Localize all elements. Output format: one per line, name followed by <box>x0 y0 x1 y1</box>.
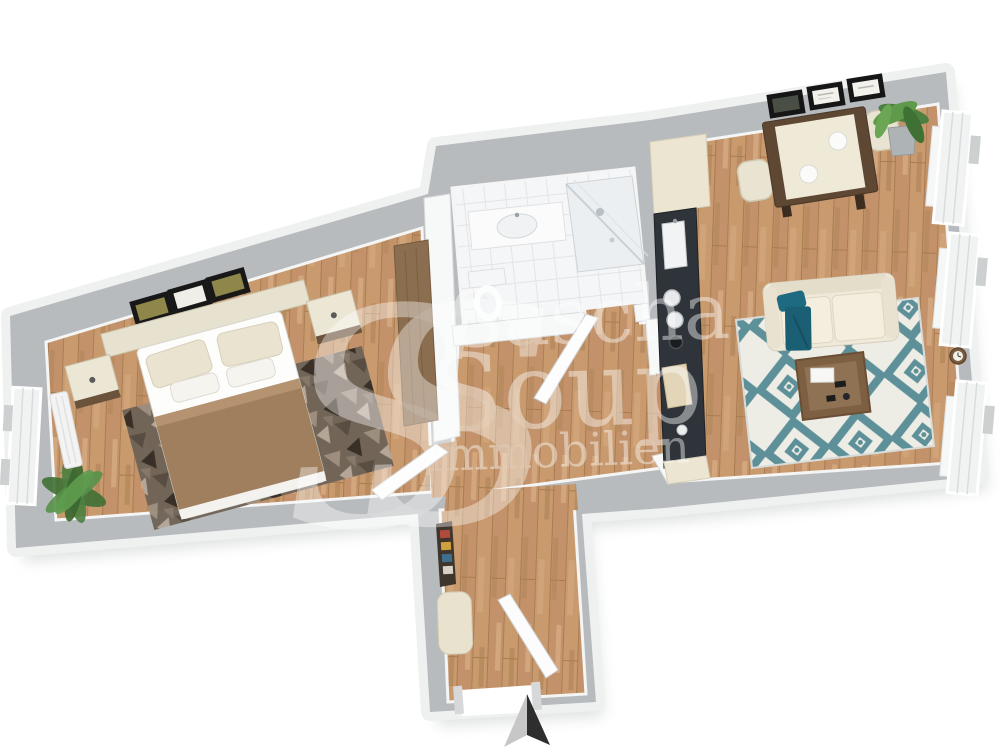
coffee-table <box>796 352 871 420</box>
floorplan-rendering: SS Sascha Soup Immobilien <box>0 0 1000 750</box>
wall-clock <box>950 348 966 364</box>
seat-cushion <box>832 292 886 342</box>
shower-head <box>596 208 604 216</box>
window <box>924 110 983 226</box>
table-top <box>775 114 866 200</box>
kitchen-sink <box>662 221 687 269</box>
magazine <box>811 368 834 382</box>
book <box>826 395 836 402</box>
storage-bench <box>437 591 473 654</box>
tall-cabinet <box>650 134 710 214</box>
shower-drain <box>610 238 615 243</box>
watermark-line3: Immobilien <box>425 419 690 482</box>
window-sill <box>0 459 10 485</box>
faucet <box>673 219 677 223</box>
window-sill <box>3 405 13 431</box>
window <box>931 232 990 348</box>
living-room <box>730 73 996 496</box>
sofa <box>762 272 900 354</box>
floorplan-canvas: SS Sascha Soup Immobilien <box>0 0 1000 750</box>
